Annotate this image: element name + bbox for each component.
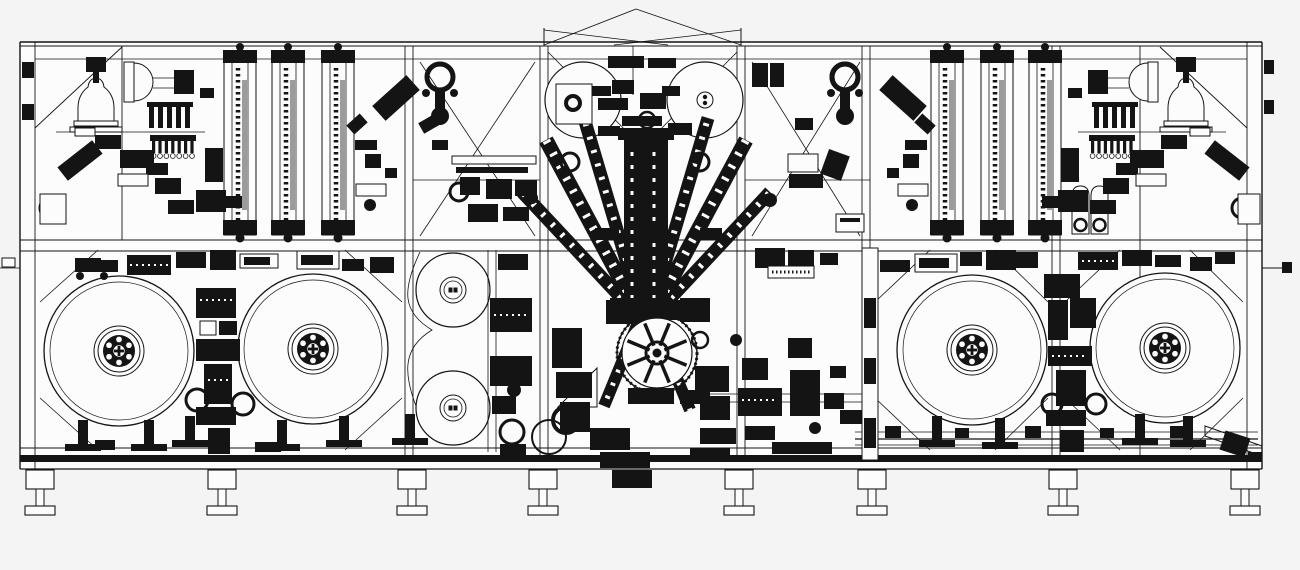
hub-key [454, 288, 458, 293]
bracket-base [1122, 438, 1158, 445]
column-cap [321, 50, 355, 63]
column-knob [1041, 234, 1050, 243]
machinery-part [755, 248, 785, 268]
leveling-foot [1048, 506, 1078, 515]
hub-key [703, 101, 707, 105]
column-knob [284, 43, 292, 51]
machinery-part [486, 179, 512, 199]
dome-arm-block [174, 70, 194, 94]
column-cap [1028, 220, 1062, 235]
machinery-part [168, 200, 194, 214]
machinery-part [788, 338, 812, 358]
hub-bolt-hole [310, 357, 316, 363]
machinery-part [552, 328, 582, 368]
hub-key [449, 406, 453, 411]
machinery-part [1190, 257, 1212, 271]
machinery-part [1044, 274, 1080, 298]
large-reel-1 [44, 276, 194, 426]
comb-strip-3 [1092, 102, 1138, 128]
column-cap [1028, 50, 1062, 63]
machinery-part [622, 116, 662, 126]
bracket-base [264, 444, 300, 451]
machinery-part [1161, 135, 1187, 149]
hub-key [449, 288, 453, 293]
leveling-foot [857, 506, 887, 515]
ring-foot [836, 107, 854, 125]
feeder-motor [1176, 57, 1196, 72]
machinery-part [763, 193, 777, 207]
leg-block [1049, 470, 1077, 489]
machinery-part [752, 63, 768, 87]
column-slide [242, 80, 247, 210]
comb-tooth [178, 141, 181, 153]
machinery-part [503, 207, 529, 221]
leveling-foot [25, 506, 55, 515]
machinery-part [610, 298, 636, 318]
machinery-part [680, 390, 710, 404]
column-knob [334, 43, 342, 51]
conveyor-column-1 [223, 43, 257, 243]
bracket-stem [185, 416, 195, 442]
machinery-part [468, 204, 498, 222]
frame-member [1282, 262, 1292, 273]
column-cap [223, 220, 257, 235]
leg-foot-7 [1048, 470, 1078, 515]
comb-tooth [1110, 141, 1113, 153]
machinery-part [612, 80, 634, 94]
leg-block [1231, 470, 1259, 489]
machinery-part [887, 168, 899, 178]
leveling-foot [1230, 506, 1260, 515]
comb-bar [1089, 135, 1135, 141]
machinery-part [772, 442, 832, 454]
machinery-part [600, 452, 650, 468]
comb-tooth [1091, 141, 1094, 153]
machinery-part [880, 260, 910, 272]
machinery-part [1136, 174, 1166, 186]
machinery-part [301, 255, 333, 265]
machinery-part [745, 426, 775, 440]
machinery-part [244, 257, 270, 265]
bracket-stem [78, 420, 88, 446]
hub-bolt-hole [1172, 351, 1178, 357]
machinery-part [526, 192, 538, 204]
leg-stem [735, 489, 743, 506]
hub-bolt-hole [126, 342, 132, 348]
feeder-motor [93, 72, 99, 83]
hub-key [703, 95, 707, 99]
machinery-part [595, 228, 619, 240]
column-knob [943, 234, 952, 243]
hub-center [967, 349, 977, 352]
leg-foot-3 [397, 470, 427, 515]
bracket-base [65, 444, 101, 451]
bracket-base [172, 440, 208, 447]
machinery-part [1012, 252, 1038, 268]
machinery-part [490, 356, 532, 386]
comb-fin [176, 107, 181, 128]
machinery-part [905, 140, 927, 150]
leg-stem [408, 489, 416, 506]
machinery-part [208, 428, 230, 454]
comb-tooth [1117, 141, 1120, 153]
machinery-part [176, 252, 206, 268]
machinery-part [100, 272, 108, 280]
machinery-part [640, 230, 670, 240]
hub-bolt-hole [310, 334, 316, 340]
conveyor-column-6 [1028, 43, 1062, 243]
ring-nut [422, 89, 430, 97]
hub-bolt-hole [116, 336, 122, 342]
bracket-base [1170, 440, 1206, 447]
machinery-part [919, 258, 949, 268]
hub-bolt-hole [320, 340, 326, 346]
bracket-stem [405, 414, 415, 440]
leg-stem [1241, 489, 1249, 506]
machinery-part [498, 254, 528, 270]
machinery-part [628, 388, 674, 404]
comb-bar [1092, 102, 1138, 107]
dome-arm-block [1088, 70, 1108, 94]
machinery-part [1116, 163, 1138, 175]
machinery-part [196, 339, 240, 361]
machinery-part [146, 163, 168, 175]
frame-member [22, 104, 34, 120]
comb-fin [1103, 107, 1108, 128]
machinery-part [903, 154, 919, 168]
hub-bolt-hole [1162, 356, 1168, 362]
feeder-flange [1164, 121, 1208, 126]
column-slide [290, 80, 295, 210]
comb-bar [150, 135, 196, 141]
bracket-stem [277, 420, 287, 446]
column-slide [949, 80, 954, 210]
leveling-foot [207, 506, 237, 515]
bracket-base [919, 440, 955, 447]
machinery-part [1248, 452, 1262, 462]
machinery-part [700, 228, 722, 240]
column-slide [1047, 80, 1052, 210]
leg-stem [539, 489, 547, 506]
bracket-base [392, 438, 428, 445]
machinery-part [356, 184, 386, 196]
leg-stem [1059, 489, 1067, 506]
column-knob [1041, 43, 1049, 51]
comb-fin [158, 107, 163, 128]
comb-tooth [1097, 141, 1100, 153]
machinery-part [742, 358, 768, 380]
hub-bolt-hole [320, 352, 326, 358]
machinery-part [76, 272, 84, 280]
machinery-part [40, 194, 66, 224]
large-reel-3 [897, 275, 1047, 425]
column-knob [993, 234, 1002, 243]
machinery-part [365, 154, 381, 168]
machinery-part [355, 140, 377, 150]
machinery-part [100, 260, 118, 272]
leg-block [725, 470, 753, 489]
hub-center [114, 350, 124, 353]
column-slide [340, 80, 345, 210]
bracket-base [982, 442, 1018, 449]
machinery-part [452, 156, 536, 164]
machinery-part [1025, 426, 1041, 438]
hub-bolt-hole [1172, 339, 1178, 345]
machinery-part [690, 448, 730, 458]
machinery-part [432, 140, 448, 150]
comb-fin [167, 107, 172, 128]
machinery-part [1060, 430, 1084, 452]
machinery-part [768, 266, 814, 278]
machinery-part [986, 250, 1016, 270]
machinery-part [460, 177, 480, 195]
hub-bolt-hole [300, 352, 306, 358]
conveyor-column-5 [980, 43, 1014, 243]
machinery-part [364, 199, 376, 211]
machinery-part [590, 428, 630, 450]
bracket-stem [1183, 416, 1193, 442]
leg-block [858, 470, 886, 489]
machinery-part [770, 63, 784, 87]
machinery-part [1090, 200, 1116, 214]
machinery-part [1070, 298, 1096, 328]
machinery-part [795, 118, 813, 130]
machinery-part [864, 418, 876, 448]
reel-flange [416, 371, 490, 445]
machinery-part [695, 366, 729, 392]
leg-block [529, 470, 557, 489]
machinery-part [790, 370, 820, 416]
machinery-part [507, 383, 521, 397]
column-cap [223, 50, 257, 63]
column-slide [999, 80, 1004, 210]
column-knob [993, 43, 1001, 51]
comb-tooth [184, 141, 187, 153]
leg-block [208, 470, 236, 489]
machinery-part [836, 214, 864, 232]
machinery-part [608, 56, 644, 68]
turret-wheel [617, 313, 697, 393]
bracket-stem [932, 416, 942, 442]
machinery-part [809, 422, 821, 434]
machinery-part [1042, 196, 1062, 208]
leg-foot-8 [1230, 470, 1260, 515]
leg-foot-5 [724, 470, 754, 515]
dome-frame [1148, 62, 1158, 102]
leg-stem [36, 489, 44, 506]
hub-center [1160, 347, 1170, 350]
large-reel-2 [238, 274, 388, 424]
comb-tooth [165, 141, 168, 153]
machinery-part [1103, 178, 1129, 194]
column-cap [271, 220, 305, 235]
comb-fin [185, 107, 190, 128]
column-knob [236, 43, 244, 51]
hub-bolt-hole [959, 341, 965, 347]
bracket-base [326, 440, 362, 447]
machinery-part [820, 253, 838, 265]
machinery-part [1155, 255, 1181, 267]
machinery-part [200, 88, 214, 98]
leveling-foot [724, 506, 754, 515]
machinery-part [556, 372, 592, 398]
reel-flange [416, 253, 490, 327]
bracket-base [131, 444, 167, 451]
ring-nut [855, 89, 863, 97]
frame-member [1264, 100, 1274, 114]
machinery-part [955, 428, 969, 438]
machinery-part [1215, 252, 1235, 264]
machinery-part [730, 334, 742, 346]
v-assembly-part [618, 128, 674, 140]
ring-nut [827, 89, 835, 97]
machinery-part [385, 168, 397, 178]
hub-bolt-hole [969, 358, 975, 364]
column-cap [321, 220, 355, 235]
cad-canvas [0, 0, 1300, 570]
dome-frame [124, 62, 134, 102]
bracket-stem [1135, 414, 1145, 440]
comb-tooth [1123, 141, 1126, 153]
machinery-part [612, 470, 652, 488]
machinery-part [840, 218, 860, 222]
comb-fin [1094, 107, 1099, 128]
machinery-part [155, 178, 181, 194]
column-cap [930, 50, 964, 63]
hub-bolt-hole [116, 359, 122, 365]
conveyor-column-3 [321, 43, 355, 243]
bracket-stem [144, 420, 154, 446]
hub-bolt-hole [979, 353, 985, 359]
machinery-part [885, 426, 901, 438]
machinery-part [1068, 88, 1082, 98]
mid-reel-lower [416, 371, 490, 445]
machinery-part [864, 298, 876, 328]
machinery-part [668, 123, 692, 135]
column-knob [236, 234, 245, 243]
leg-stem [218, 489, 226, 506]
hub-center [308, 348, 318, 351]
comb-fin [1112, 107, 1117, 128]
machinery-part [788, 250, 814, 266]
hub-bolt-hole [300, 340, 306, 346]
feeder-motor [86, 57, 106, 72]
machinery-part [75, 258, 101, 272]
column-knob [943, 43, 951, 51]
large-reel-4 [1090, 273, 1240, 423]
machinery-part [662, 86, 680, 96]
machinery-part [960, 252, 982, 266]
leveling-foot [528, 506, 558, 515]
machine-engineering-drawing [0, 0, 1300, 570]
frame-member [636, 9, 741, 45]
comb-fin [1121, 107, 1126, 128]
leg-block [26, 470, 54, 489]
machinery-part [370, 257, 394, 273]
frame-member [1264, 60, 1274, 74]
machinery-part [1122, 250, 1152, 266]
machinery-part [456, 167, 528, 173]
leg-block [398, 470, 426, 489]
bracket-stem [339, 416, 349, 442]
hub-bolt-hole [106, 342, 112, 348]
column-cap [980, 220, 1014, 235]
hub-key [454, 406, 458, 411]
leg-stem [868, 489, 876, 506]
machinery-part [840, 410, 864, 424]
machinery-part [830, 366, 846, 378]
machinery-part [95, 135, 121, 149]
hub-bolt-hole [1152, 351, 1158, 357]
machinery-part [196, 288, 236, 318]
column-cap [930, 220, 964, 235]
machinery-part [598, 98, 628, 110]
hub-bolt-hole [1162, 333, 1168, 339]
machinery-part [700, 428, 736, 444]
feeder-flange [74, 121, 118, 126]
hub-bolt-hole [979, 341, 985, 347]
machinery-part [196, 190, 226, 212]
comb-fin [1130, 107, 1135, 128]
machinery-part [200, 321, 216, 335]
conveyor-column-2 [271, 43, 305, 243]
leg-foot-1 [25, 470, 55, 515]
machinery-part [1190, 128, 1210, 136]
bracket-stem [995, 418, 1005, 444]
hub-bolt-hole [1152, 339, 1158, 345]
conveyor-column-4 [930, 43, 964, 243]
machinery-part [824, 393, 844, 409]
machinery-part [906, 199, 918, 211]
machinery-part [1046, 410, 1086, 426]
column-knob [334, 234, 343, 243]
comb-fin [149, 107, 154, 128]
column-cap [980, 50, 1014, 63]
feeder-motor [1183, 72, 1189, 83]
machinery-part [205, 148, 223, 182]
machinery-part [118, 174, 148, 186]
machinery-part [342, 259, 364, 271]
ring-nut [450, 89, 458, 97]
comb-tooth [190, 141, 193, 153]
machinery-part [1048, 300, 1068, 340]
machinery-part [864, 358, 876, 384]
machinery-part [788, 154, 818, 172]
leg-foot-2 [207, 470, 237, 515]
machinery-part [648, 58, 676, 68]
comb-bar [147, 102, 193, 107]
machinery-part [1061, 148, 1079, 182]
machinery-part [492, 396, 516, 414]
hub-bolt-hole [969, 335, 975, 341]
hub-bolt-hole [959, 353, 965, 359]
comb-tooth [1104, 141, 1107, 153]
comb-strip-1 [147, 102, 193, 128]
comb-tooth [158, 141, 161, 153]
machinery-part [75, 128, 95, 136]
machinery-part [1238, 194, 1260, 224]
machinery-part [219, 321, 237, 335]
frame-member [2, 258, 15, 267]
machinery-part [1058, 190, 1088, 212]
machinery-part [898, 184, 928, 196]
column-cap [271, 50, 305, 63]
machinery-part [556, 84, 592, 124]
turret-hub [653, 349, 662, 358]
hub-bolt-hole [106, 354, 112, 360]
hub-bolt-hole [126, 354, 132, 360]
machinery-part [680, 298, 710, 322]
